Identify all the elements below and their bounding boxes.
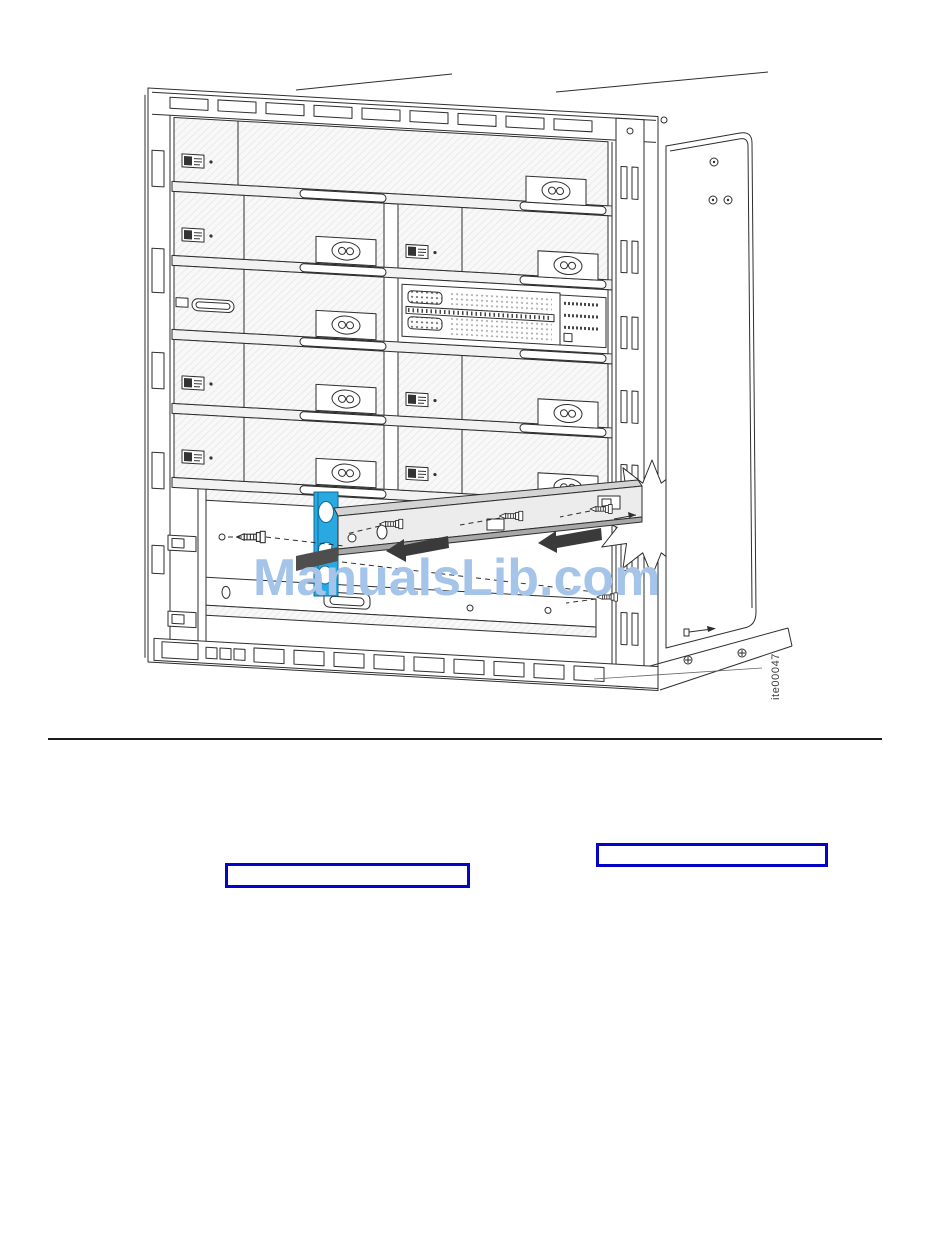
watermark: ManualsLib.com — [253, 548, 660, 608]
io-connector-module — [398, 278, 608, 354]
link-annotation-1[interactable] — [225, 863, 470, 888]
manual-page: ManualsLib.com ite00047 — [0, 0, 950, 1260]
figure-id-label: ite00047 — [770, 653, 782, 700]
link-annotation-2[interactable] — [596, 843, 828, 867]
section-divider — [48, 738, 882, 740]
chassis-illustration — [0, 0, 950, 720]
top-cover-edges — [296, 72, 768, 92]
